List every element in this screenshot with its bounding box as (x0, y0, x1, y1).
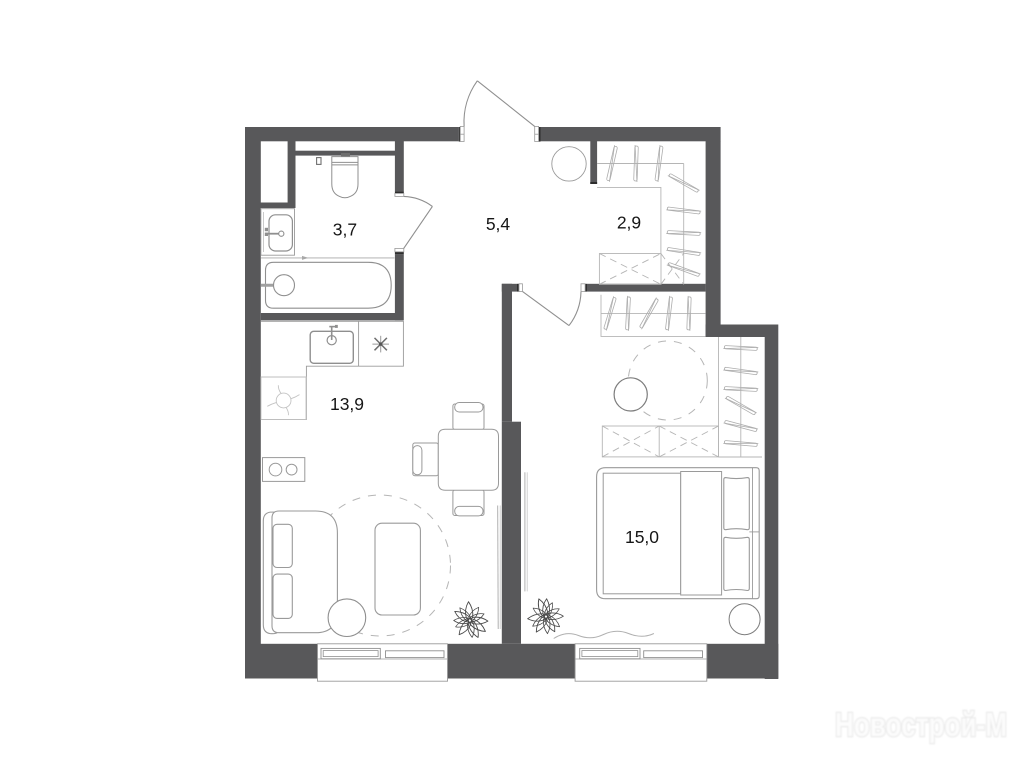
svg-text:5,4: 5,4 (486, 214, 511, 234)
svg-text:3,7: 3,7 (333, 220, 357, 240)
svg-text:2,9: 2,9 (617, 213, 641, 233)
svg-text:15,0: 15,0 (625, 527, 659, 547)
svg-text:13,9: 13,9 (330, 394, 364, 414)
svg-text:Новострой-М: Новострой-М (835, 706, 1007, 743)
